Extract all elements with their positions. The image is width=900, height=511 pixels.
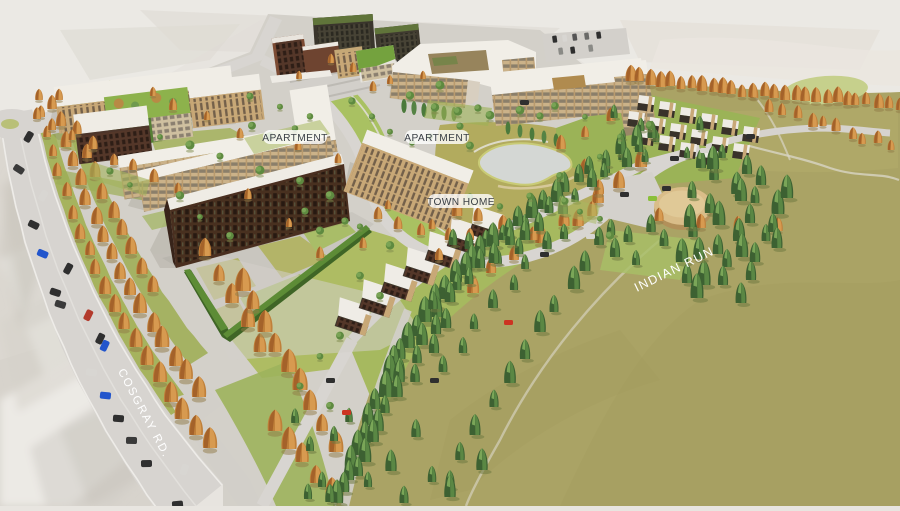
svg-text:APARTMENT: APARTMENT bbox=[262, 133, 328, 144]
svg-text:APARTMENT: APARTMENT bbox=[404, 133, 470, 144]
svg-text:TOWN HOME: TOWN HOME bbox=[427, 197, 495, 208]
